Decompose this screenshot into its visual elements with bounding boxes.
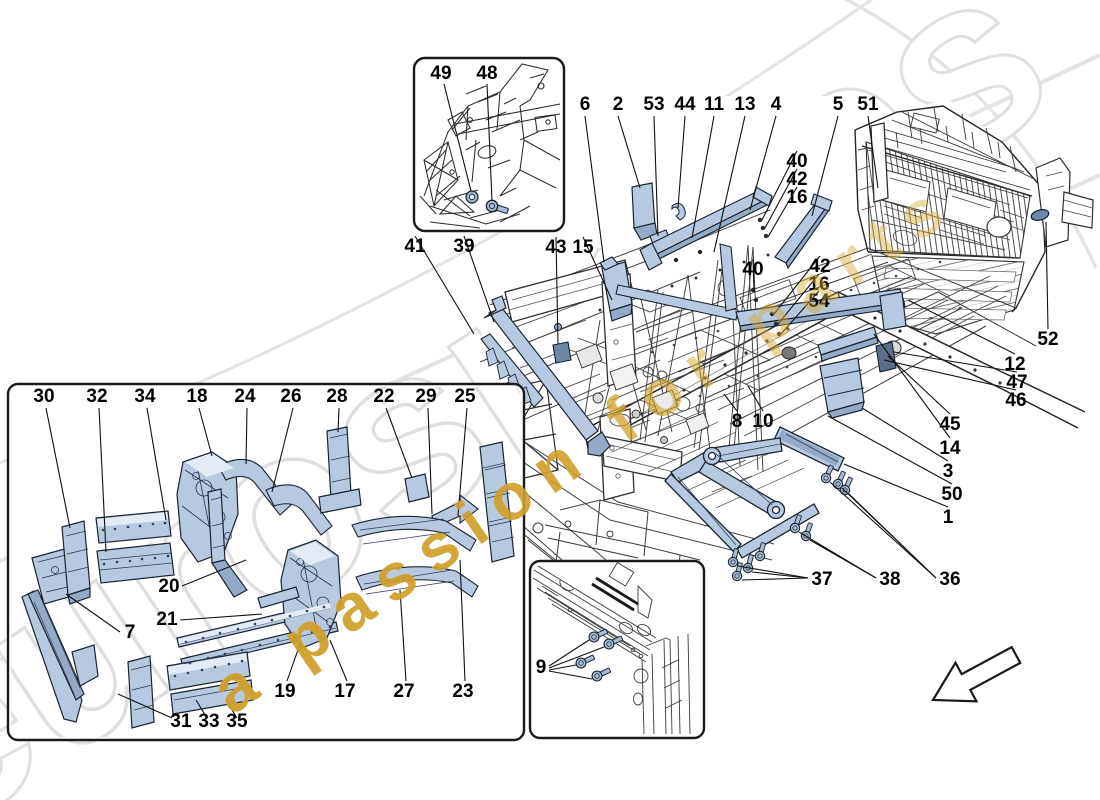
svg-text:33: 33 bbox=[198, 711, 219, 732]
svg-text:48: 48 bbox=[476, 63, 497, 84]
svg-text:51: 51 bbox=[857, 94, 879, 115]
svg-text:2: 2 bbox=[613, 94, 624, 115]
svg-text:29: 29 bbox=[415, 386, 436, 407]
svg-text:1: 1 bbox=[943, 507, 954, 528]
svg-text:28: 28 bbox=[326, 386, 347, 407]
svg-text:27: 27 bbox=[393, 681, 414, 702]
svg-text:31: 31 bbox=[170, 711, 192, 732]
svg-text:22: 22 bbox=[373, 386, 394, 407]
svg-text:23: 23 bbox=[452, 681, 473, 702]
svg-text:34: 34 bbox=[134, 386, 156, 407]
svg-text:6: 6 bbox=[580, 94, 591, 115]
svg-text:5: 5 bbox=[833, 94, 844, 115]
svg-text:8: 8 bbox=[732, 411, 743, 432]
svg-text:11: 11 bbox=[704, 94, 725, 115]
svg-text:53: 53 bbox=[643, 94, 664, 115]
svg-text:7: 7 bbox=[125, 622, 136, 643]
svg-text:16: 16 bbox=[786, 187, 807, 208]
svg-text:36: 36 bbox=[939, 569, 960, 590]
svg-text:10: 10 bbox=[752, 411, 773, 432]
svg-text:52: 52 bbox=[1037, 329, 1058, 350]
svg-text:32: 32 bbox=[86, 386, 107, 407]
svg-text:50: 50 bbox=[941, 484, 962, 505]
svg-text:14: 14 bbox=[939, 438, 961, 459]
svg-text:24: 24 bbox=[234, 386, 256, 407]
svg-text:39: 39 bbox=[453, 236, 474, 257]
svg-text:13: 13 bbox=[734, 94, 755, 115]
svg-text:30: 30 bbox=[33, 386, 54, 407]
svg-text:3: 3 bbox=[943, 461, 954, 482]
svg-text:21: 21 bbox=[156, 609, 178, 630]
svg-text:37: 37 bbox=[811, 569, 832, 590]
svg-text:45: 45 bbox=[939, 414, 961, 435]
svg-text:44: 44 bbox=[674, 94, 696, 115]
svg-text:41: 41 bbox=[404, 236, 426, 257]
svg-text:26: 26 bbox=[280, 386, 301, 407]
svg-text:25: 25 bbox=[454, 386, 476, 407]
svg-text:38: 38 bbox=[879, 569, 900, 590]
svg-text:49: 49 bbox=[430, 63, 451, 84]
svg-text:20: 20 bbox=[158, 576, 179, 597]
svg-text:18: 18 bbox=[186, 386, 207, 407]
svg-text:4: 4 bbox=[771, 94, 782, 115]
svg-text:9: 9 bbox=[536, 657, 547, 678]
svg-text:46: 46 bbox=[1005, 390, 1026, 411]
svg-text:17: 17 bbox=[334, 681, 355, 702]
